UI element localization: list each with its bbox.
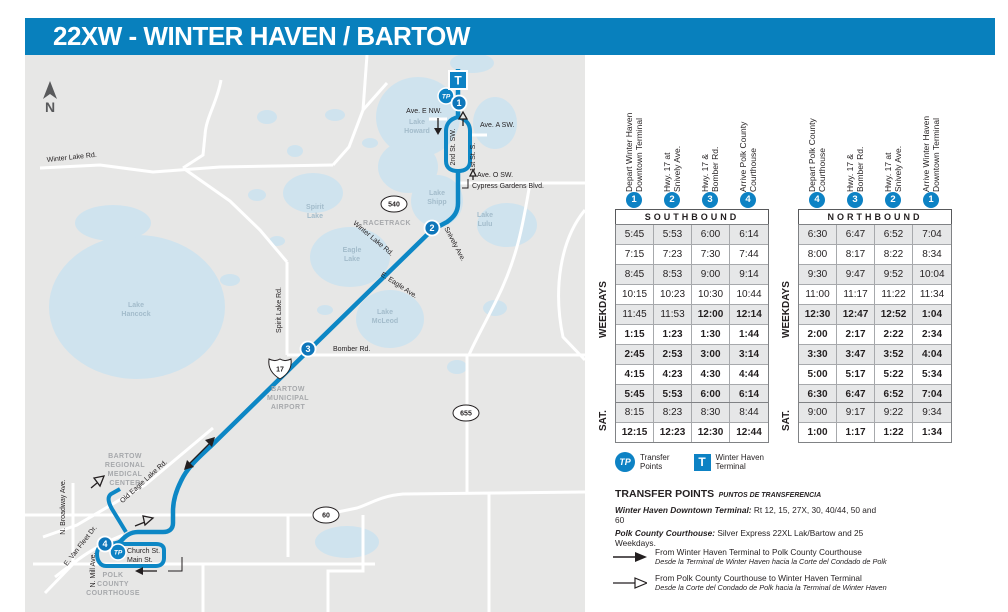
schedule-col-header-line: Bomber Rd. (710, 76, 720, 192)
timetable-row: 6:306:476:527:04 (799, 225, 951, 245)
time-cell: 8:23 (654, 403, 692, 422)
time-cell: 2:53 (654, 345, 692, 364)
time-cell: 10:04 (913, 265, 951, 284)
direction-header-northbound: NORTHBOUND (798, 209, 952, 225)
timetable-row: 12:1512:2312:3012:44 (616, 423, 768, 442)
time-cell: 5:17 (837, 365, 875, 384)
time-cell: 6:14 (730, 225, 768, 244)
time-cell: 11:22 (875, 285, 913, 304)
route-stop-number: 2 (429, 223, 434, 233)
schedule-col-header: Arrive Polk CountyCourthouse (738, 76, 758, 192)
road-shield-label: 17 (276, 367, 284, 374)
time-cell: 2:22 (875, 325, 913, 344)
route-stop-number: 1 (456, 98, 461, 108)
timetable-row: 11:4511:5312:0012:14 (616, 305, 768, 325)
saturday-label: SAT. (598, 402, 612, 440)
direction-legend-text-es: Desde la Terminal de Winter Haven hacia … (655, 557, 887, 566)
schedule-col-header: Arrive Winter HavenDowntown Terminal (921, 76, 941, 192)
title-bar: 22XW - WINTER HAVEN / BARTOW (25, 18, 995, 55)
timetable-saturday-southbound: 8:158:238:308:4412:1512:2312:3012:44 (615, 402, 769, 443)
time-cell: 1:17 (837, 423, 875, 442)
time-cell: 9:14 (730, 265, 768, 284)
time-cell: 4:04 (913, 345, 951, 364)
timetable-row: 9:309:479:5210:04 (799, 265, 951, 285)
time-cell: 12:47 (837, 305, 875, 324)
time-cell: 11:34 (913, 285, 951, 304)
time-cell: 1:44 (730, 325, 768, 344)
street-label: N. Mill Ave. (90, 553, 97, 588)
stop-number-badge: 1 (626, 192, 642, 208)
timetable-row: 4:154:234:304:44 (616, 365, 768, 385)
timetable-row: 3:303:473:524:04 (799, 345, 951, 365)
time-cell: 10:44 (730, 285, 768, 304)
time-cell: 5:00 (799, 365, 837, 384)
time-cell: 7:44 (730, 245, 768, 264)
schedule-col-header: Hwy. 17 &Bomber Rd. (845, 76, 865, 192)
direction-legend-solid: From Winter Haven Terminal to Polk Count… (613, 547, 887, 566)
street-label: N. Broadway Ave. (60, 479, 67, 535)
time-cell: 4:23 (654, 365, 692, 384)
weekdays-label: WEEKDAYS (598, 224, 612, 395)
transfer-point-name: Winter Haven Downtown Terminal: (615, 505, 752, 515)
time-cell: 6:47 (837, 225, 875, 244)
schedule-col-header-line: Snively Ave. (672, 76, 682, 192)
time-cell: 12:15 (616, 423, 654, 442)
street-label: Main St. (127, 557, 153, 564)
road-shield-label: 60 (322, 513, 330, 520)
timetable-row: 12:3012:4712:521:04 (799, 305, 951, 325)
schedule-col-header-line: Depart Polk County (807, 76, 817, 192)
terminal-label: Winter Haven Terminal (716, 453, 764, 471)
time-cell: 8:17 (837, 245, 875, 264)
stop-number-badge: 2 (664, 192, 680, 208)
timetable-row: 8:008:178:228:34 (799, 245, 951, 265)
stop-number-badge: 3 (702, 192, 718, 208)
terminal-marker-label: T (454, 74, 462, 88)
transfer-point-entry: Winter Haven Downtown Terminal: Rt 12, 1… (615, 505, 877, 525)
schedule-col-header: Hwy. 17 atSnively Ave. (662, 76, 682, 192)
schedule-col-header-line: Downtown Terminal (634, 76, 644, 192)
direction-legend-text-es: Desde la Corte del Condado de Polk hacia… (655, 583, 887, 592)
timetable-weekdays-southbound: 5:455:536:006:147:157:237:307:448:458:53… (615, 224, 769, 405)
stop-number-badge: 4 (809, 192, 825, 208)
time-cell: 9:47 (837, 265, 875, 284)
transfer-points-section: TRANSFER POINTS PUNTOS DE TRANSFERENCIA … (615, 484, 905, 548)
street-label: 1st St. S. (470, 143, 477, 171)
road-shield-label: 655 (460, 411, 472, 418)
schedule-col-header-line: Hwy. 17 at (883, 76, 893, 192)
time-cell: 1:23 (654, 325, 692, 344)
time-cell: 12:00 (692, 305, 730, 324)
schedule-col-header-line: Downtown Terminal (931, 76, 941, 192)
timetable-row: 7:157:237:307:44 (616, 245, 768, 265)
time-cell: 9:00 (692, 265, 730, 284)
route-map: N Ave. E NW.Ave. A SW.Ave. O SW.Cypress … (25, 55, 585, 612)
time-cell: 9:52 (875, 265, 913, 284)
time-cell: 12:52 (875, 305, 913, 324)
time-cell: 1:04 (913, 305, 951, 324)
time-cell: 10:15 (616, 285, 654, 304)
solid-arrow-icon (613, 550, 647, 564)
time-cell: 8:00 (799, 245, 837, 264)
schedule-col-header-line: Courthouse (748, 76, 758, 192)
timetable-row: 5:005:175:225:34 (799, 365, 951, 385)
street-label: Spirit Lake Rd. (276, 287, 283, 333)
street-label: Ave. E NW. (406, 108, 442, 115)
place-label: BARTOWMUNICIPALAIRPORT (267, 386, 309, 411)
time-cell: 12:30 (692, 423, 730, 442)
time-cell: 11:00 (799, 285, 837, 304)
timetable-row: 8:458:539:009:14 (616, 265, 768, 285)
time-cell: 1:34 (913, 423, 951, 442)
street-label: Ave. A SW. (480, 122, 515, 129)
stop-number-badge: 2 (885, 192, 901, 208)
time-cell: 8:34 (913, 245, 951, 264)
compass-n-label: N (45, 99, 55, 115)
timetable-row: 1:151:231:301:44 (616, 325, 768, 345)
schedule-panel: TP Transfer Points T Winter Haven Termin… (590, 60, 1008, 612)
time-cell: 6:00 (692, 225, 730, 244)
timetable-row: 11:0011:1711:2211:34 (799, 285, 951, 305)
time-cell: 7:15 (616, 245, 654, 264)
time-cell: 3:47 (837, 345, 875, 364)
transfer-points-heading: TRANSFER POINTS (615, 488, 714, 500)
direction-legend-text: From Polk County Courthouse to Winter Ha… (655, 573, 887, 583)
direction-legend-hollow: From Polk County Courthouse to Winter Ha… (613, 573, 887, 592)
time-cell: 1:30 (692, 325, 730, 344)
time-cell: 10:23 (654, 285, 692, 304)
schedule-col-header-line: Courthouse (817, 76, 827, 192)
time-cell: 11:17 (837, 285, 875, 304)
time-cell: 9:34 (913, 403, 951, 422)
time-cell: 4:15 (616, 365, 654, 384)
time-cell: 8:45 (616, 265, 654, 284)
time-cell: 1:00 (799, 423, 837, 442)
schedule-col-header: Depart Winter HavenDowntown Terminal (624, 76, 644, 192)
road-shield-label: 540 (388, 202, 400, 209)
time-cell: 5:22 (875, 365, 913, 384)
time-cell: 7:04 (913, 225, 951, 244)
schedule-col-header-line: Depart Winter Haven (624, 76, 634, 192)
transfer-point-marker-label: TP (114, 549, 123, 556)
timetable-row: 8:158:238:308:44 (616, 403, 768, 423)
stop-number-badge: 4 (740, 192, 756, 208)
time-cell: 12:23 (654, 423, 692, 442)
time-cell: 11:53 (654, 305, 692, 324)
compass: N (43, 81, 57, 115)
time-cell: 3:30 (799, 345, 837, 364)
schedule-col-header-line: Hwy. 17 at (662, 76, 672, 192)
street-label: Cypress Gardens Blvd. (472, 183, 544, 190)
time-cell: 7:30 (692, 245, 730, 264)
timetable-row: 1:001:171:221:34 (799, 423, 951, 442)
schedule-col-header: Hwy. 17 atSnively Ave. (883, 76, 903, 192)
time-cell: 5:53 (654, 225, 692, 244)
weekdays-label: WEEKDAYS (781, 224, 795, 395)
time-cell: 2:45 (616, 345, 654, 364)
time-cell: 3:52 (875, 345, 913, 364)
place-label: BARTOWREGIONALMEDICALCENTER (105, 453, 145, 487)
compass-arrow-icon (43, 81, 57, 99)
stop-number-badge: 1 (923, 192, 939, 208)
route-stop-number: 3 (305, 344, 310, 354)
time-cell: 10:30 (692, 285, 730, 304)
route-title: 22XW - WINTER HAVEN / BARTOW (25, 21, 470, 52)
time-cell: 8:53 (654, 265, 692, 284)
timetable-row: 2:002:172:222:34 (799, 325, 951, 345)
time-cell: 3:14 (730, 345, 768, 364)
schedule-col-header-line: Hwy. 17 & (845, 76, 855, 192)
time-cell: 6:52 (875, 225, 913, 244)
street-label: Bomber Rd. (333, 346, 370, 353)
time-cell: 3:00 (692, 345, 730, 364)
time-cell: 2:34 (913, 325, 951, 344)
schedule-col-header-line: Arrive Polk County (738, 76, 748, 192)
saturday-label: SAT. (781, 402, 795, 440)
time-cell: 9:22 (875, 403, 913, 422)
transfer-points-heading-es: PUNTOS DE TRANSFERENCIA (719, 492, 822, 499)
timetable-row: 5:455:536:006:14 (616, 225, 768, 245)
stop-number-badge: 3 (847, 192, 863, 208)
time-cell: 11:45 (616, 305, 654, 324)
time-cell: 6:30 (799, 225, 837, 244)
schedule-col-header-line: Snively Ave. (893, 76, 903, 192)
map-svg: N Ave. E NW.Ave. A SW.Ave. O SW.Cypress … (25, 55, 585, 612)
time-cell: 5:45 (616, 225, 654, 244)
timetable-row: 9:009:179:229:34 (799, 403, 951, 423)
time-cell: 9:17 (837, 403, 875, 422)
timetable-row: 10:1510:2310:3010:44 (616, 285, 768, 305)
time-cell: 8:30 (692, 403, 730, 422)
time-cell: 2:17 (837, 325, 875, 344)
transfer-points-label: Transfer Points (640, 453, 670, 471)
street-label: 2nd St. SW. (450, 128, 457, 165)
time-cell: 2:00 (799, 325, 837, 344)
timetable-row: 2:452:533:003:14 (616, 345, 768, 365)
schedule-col-header: Depart Polk CountyCourthouse (807, 76, 827, 192)
timetable-weekdays-northbound: 6:306:476:527:048:008:178:228:349:309:47… (798, 224, 952, 405)
transfer-point-entry: Polk County Courthouse: Silver Express 2… (615, 528, 877, 548)
schedule-col-header-line: Arrive Winter Haven (921, 76, 931, 192)
street-label: Church St. (127, 548, 160, 555)
time-cell: 7:23 (654, 245, 692, 264)
timetable-saturday-northbound: 9:009:179:229:341:001:171:221:34 (798, 402, 952, 443)
street-label: Ave. O SW. (477, 172, 513, 179)
place-label: RACETRACK (363, 220, 411, 227)
time-cell: 4:30 (692, 365, 730, 384)
time-cell: 9:00 (799, 403, 837, 422)
hollow-arrow-icon (613, 576, 647, 590)
time-cell: 12:14 (730, 305, 768, 324)
time-cell: 1:22 (875, 423, 913, 442)
map-legend: TP Transfer Points T Winter Haven Termin… (615, 452, 764, 472)
schedule-col-header-line: Bomber Rd. (855, 76, 865, 192)
time-cell: 9:30 (799, 265, 837, 284)
transfer-points-icon: TP (615, 452, 635, 472)
time-cell: 8:22 (875, 245, 913, 264)
time-cell: 5:34 (913, 365, 951, 384)
time-cell: 4:44 (730, 365, 768, 384)
street-label: Winter Lake Rd. (46, 152, 97, 164)
time-cell: 1:15 (616, 325, 654, 344)
schedule-col-header: Hwy. 17 &Bomber Rd. (700, 76, 720, 192)
time-cell: 12:30 (799, 305, 837, 324)
schedule-col-header-line: Hwy. 17 & (700, 76, 710, 192)
time-cell: 12:44 (730, 423, 768, 442)
time-cell: 8:44 (730, 403, 768, 422)
direction-legend-text: From Winter Haven Terminal to Polk Count… (655, 547, 887, 557)
route-stop-number: 4 (102, 539, 107, 549)
direction-header-southbound: SOUTHBOUND (615, 209, 769, 225)
street-label: Snively Ave. (442, 226, 466, 263)
transfer-point-marker-label: TP (442, 93, 451, 100)
terminal-icon: T (694, 454, 711, 471)
time-cell: 8:15 (616, 403, 654, 422)
transfer-point-name: Polk County Courthouse: (615, 528, 715, 538)
